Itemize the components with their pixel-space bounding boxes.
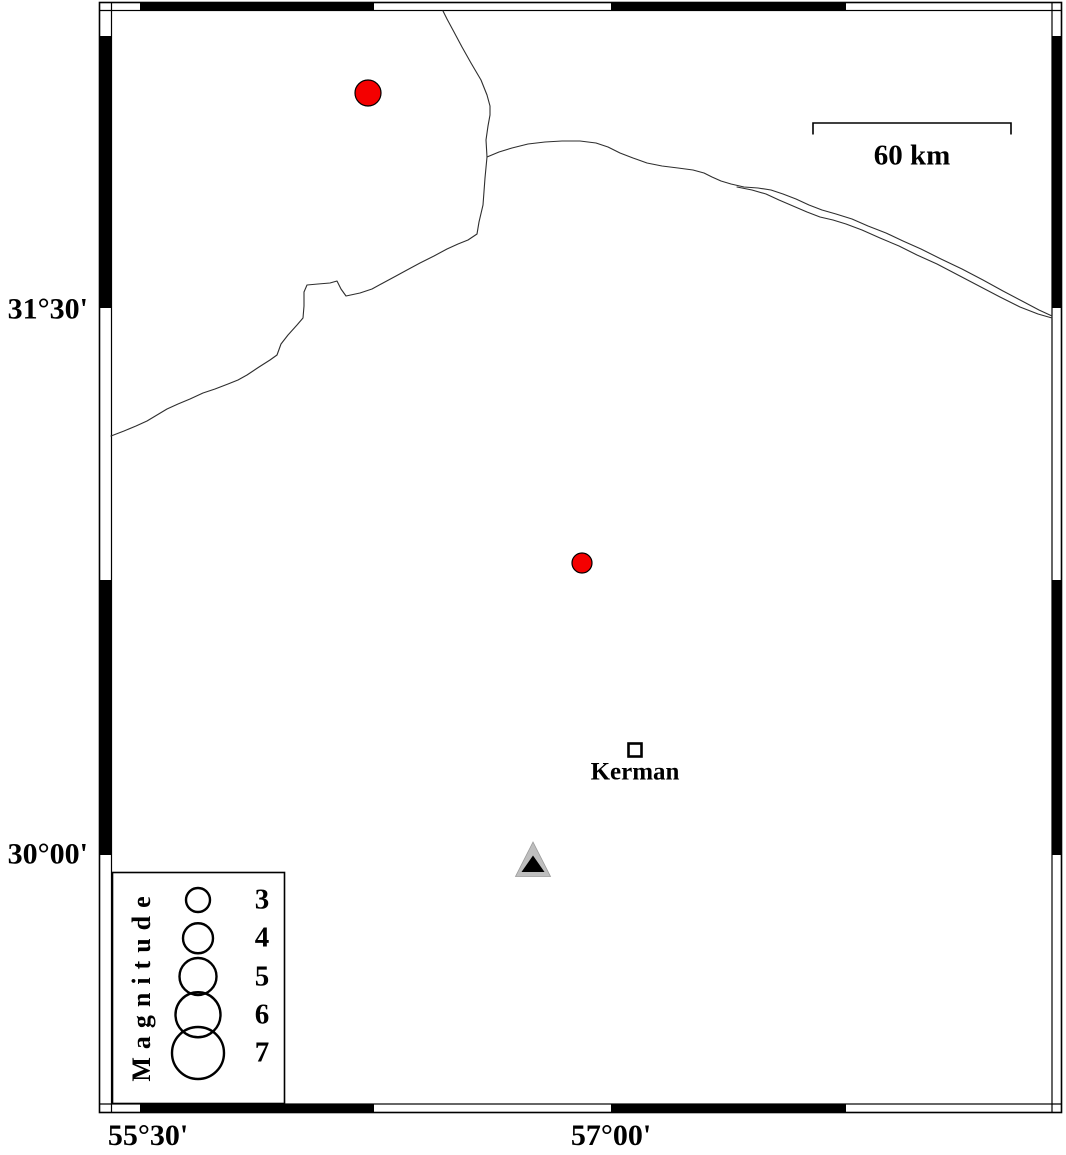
seismicity-map: 31°30' 30°00' 55°30' 57°00' 60 km Kerman… xyxy=(0,0,1066,1155)
legend-magnitude-label: 3 xyxy=(255,886,270,915)
border-line-west xyxy=(111,157,487,436)
border-lines xyxy=(111,11,1052,436)
lat-label-30-00: 30°00' xyxy=(8,839,88,869)
legend-magnitude-label: 7 xyxy=(255,1039,270,1068)
legend-magnitude-label: 4 xyxy=(255,924,270,953)
lon-label-57-00: 57°00' xyxy=(571,1121,651,1151)
scale-bar-bracket xyxy=(813,123,1011,135)
border-line-north xyxy=(443,11,490,157)
map-canvas xyxy=(0,0,1066,1155)
scale-bar-label: 60 km xyxy=(874,142,951,171)
station-marker xyxy=(516,842,551,877)
border-line-northeast-upper xyxy=(487,141,1052,316)
legend-magnitude-label: 6 xyxy=(255,1000,270,1029)
legend-title: Magnitude xyxy=(129,888,155,1081)
earthquake-epicenters xyxy=(355,80,592,573)
earthquake-epicenter xyxy=(572,553,592,573)
city-label: Kerman xyxy=(591,760,680,785)
city-marker-group xyxy=(629,744,642,757)
border-line-northeast-lower xyxy=(737,187,1052,318)
earthquake-epicenter xyxy=(355,80,381,106)
legend-magnitude-label: 5 xyxy=(255,962,270,991)
lon-label-55-30: 55°30' xyxy=(108,1121,188,1151)
lat-label-31-30: 31°30' xyxy=(8,294,88,324)
city-square-icon xyxy=(629,744,642,757)
